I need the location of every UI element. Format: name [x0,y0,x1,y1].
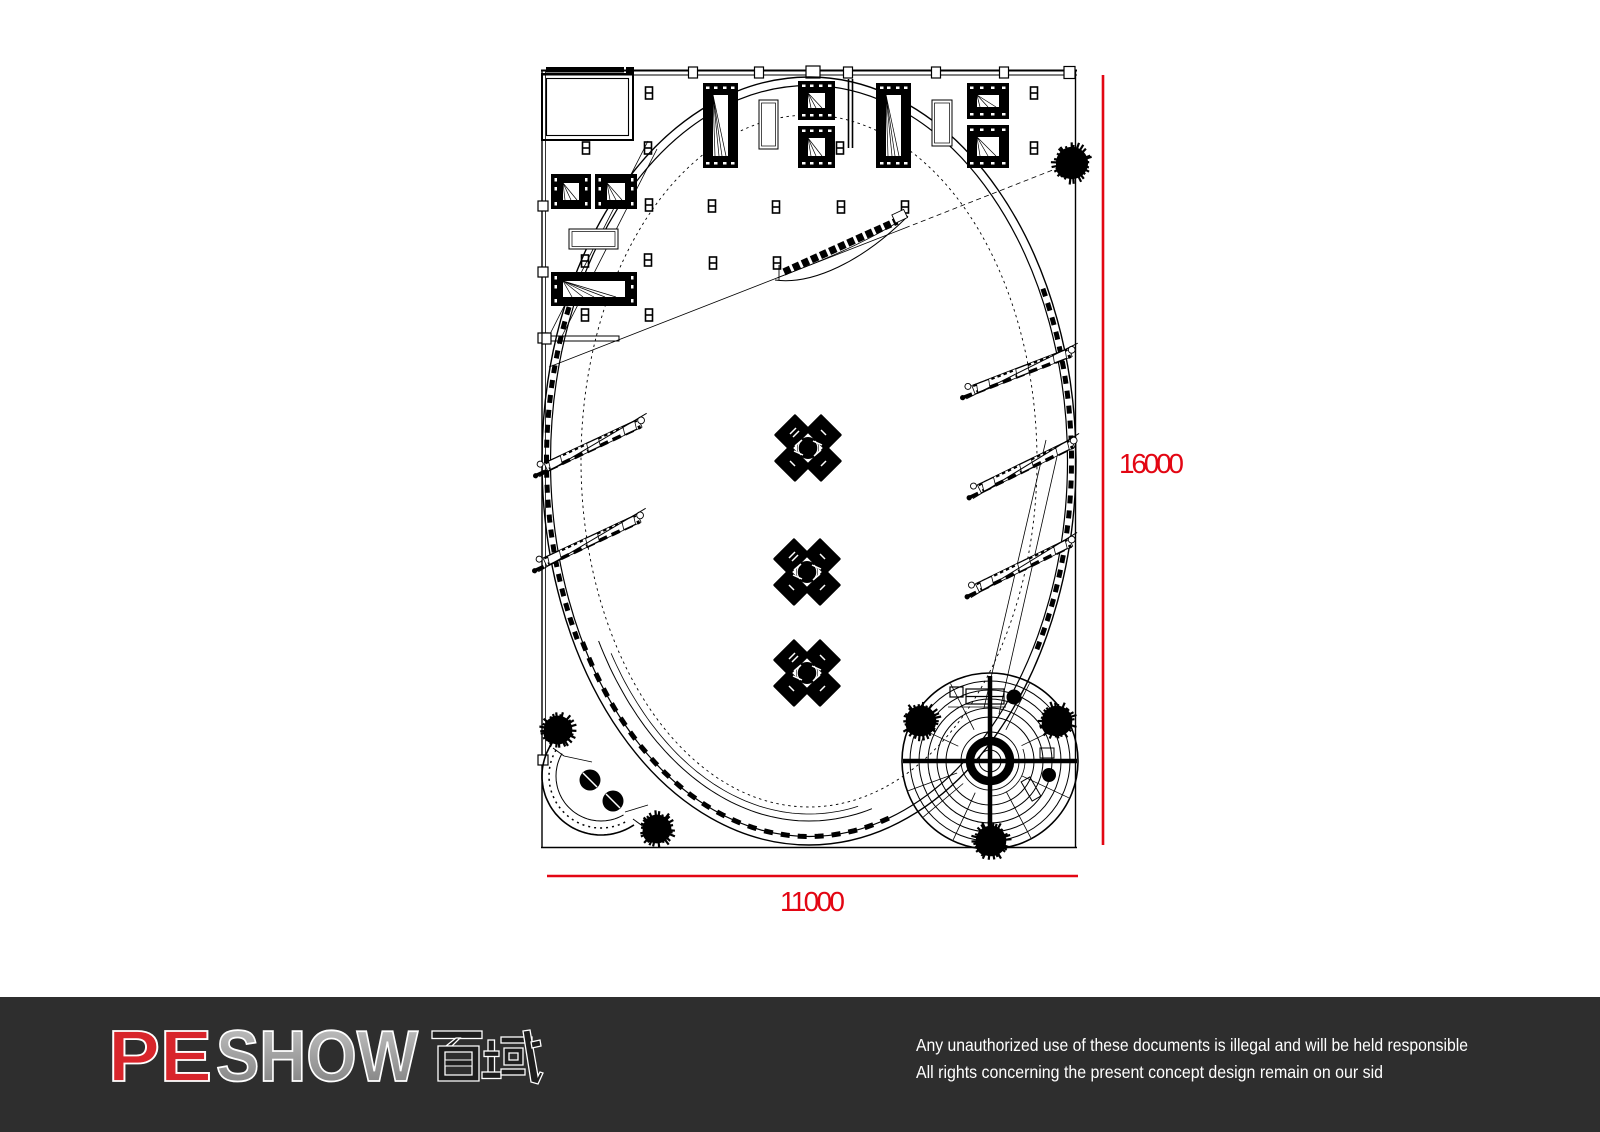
svg-text:PE: PE [108,1017,212,1097]
svg-text:SHOW: SHOW [216,1017,418,1097]
svg-text:16000: 16000 [1119,448,1184,479]
svg-text:Any unauthorized use of these: Any unauthorized use of these documents … [916,1035,1468,1055]
svg-text:11000: 11000 [780,886,845,917]
svg-text:All rights concerning the pres: All rights concerning the present concep… [916,1062,1383,1082]
